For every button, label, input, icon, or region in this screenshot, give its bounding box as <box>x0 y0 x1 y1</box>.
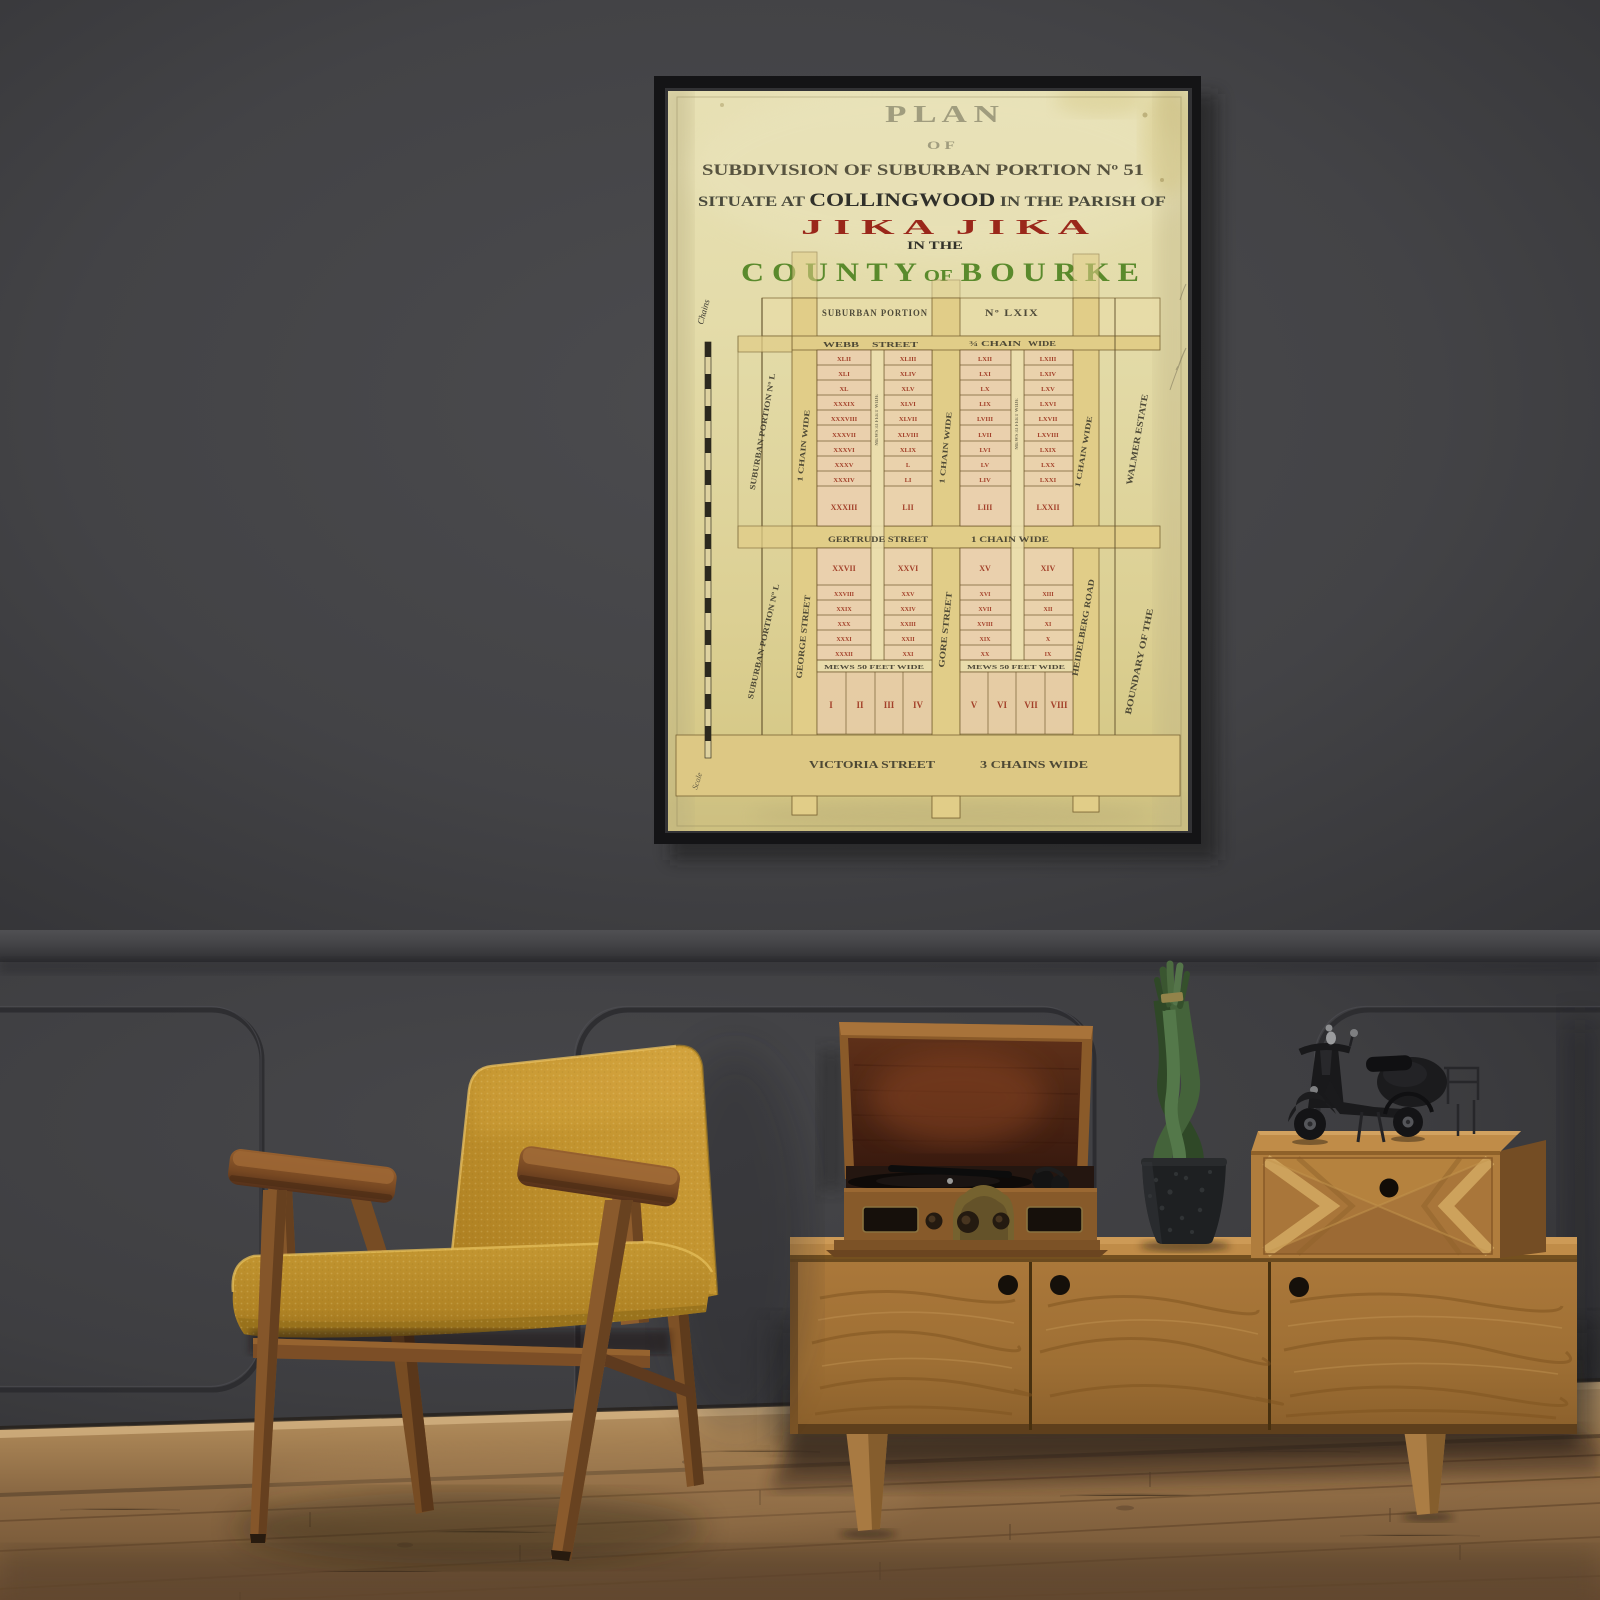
svg-text:XXXI: XXXI <box>836 637 852 643</box>
svg-text:XXXII: XXXII <box>835 652 853 658</box>
svg-text:VII: VII <box>1024 700 1038 710</box>
svg-text:XXVII: XXVII <box>832 564 856 573</box>
svg-text:XVII: XVII <box>978 607 992 613</box>
svg-text:XL: XL <box>839 386 849 393</box>
svg-text:LXV: LXV <box>1041 386 1055 393</box>
svg-text:XLVII: XLVII <box>899 416 918 423</box>
svg-text:LI: LI <box>905 477 912 484</box>
svg-text:XVI: XVI <box>979 592 991 598</box>
svg-text:LXXI: LXXI <box>1040 477 1057 484</box>
svg-text:WIDE: WIDE <box>1028 340 1056 348</box>
svg-text:LXX: LXX <box>1041 462 1055 469</box>
svg-text:XII: XII <box>1043 607 1053 613</box>
svg-text:J I K A J I K A: J I K A J I K A <box>801 215 1091 239</box>
svg-text:LIX: LIX <box>979 401 991 408</box>
svg-text:II: II <box>856 700 864 710</box>
svg-text:IV: IV <box>913 700 924 710</box>
svg-text:XVIII: XVIII <box>977 622 993 628</box>
svg-text:SITUATE AT COLLINGWOOD IN THE: SITUATE AT COLLINGWOOD IN THE PARISH OF <box>698 190 1166 211</box>
svg-text:IN THE: IN THE <box>907 238 963 252</box>
svg-text:LXVIII: LXVIII <box>1037 432 1059 439</box>
svg-text:XXIV: XXIV <box>900 607 916 613</box>
svg-text:O F: O F <box>927 138 955 152</box>
svg-text:XLV: XLV <box>901 386 914 393</box>
svg-text:I: I <box>829 700 833 710</box>
svg-text:GERTRUDE STREET: GERTRUDE STREET <box>828 534 928 544</box>
svg-text:LIII: LIII <box>978 503 993 512</box>
svg-text:MEWS 50 FEET WIDE: MEWS 50 FEET WIDE <box>967 665 1065 671</box>
svg-text:IX: IX <box>1045 652 1052 658</box>
svg-text:LVII: LVII <box>978 432 992 439</box>
svg-text:XXV: XXV <box>902 592 916 598</box>
svg-text:XXIX: XXIX <box>836 607 852 613</box>
svg-text:LXIII: LXIII <box>1040 356 1057 363</box>
svg-text:LXXII: LXXII <box>1036 503 1059 512</box>
svg-text:III: III <box>884 700 895 710</box>
svg-text:XXXIII: XXXIII <box>831 503 858 512</box>
svg-text:Nº LXIX: Nº LXIX <box>985 308 1039 318</box>
svg-text:LII: LII <box>902 503 914 512</box>
svg-text:LV: LV <box>981 462 990 469</box>
svg-text:XXXVII: XXXVII <box>832 432 856 439</box>
svg-text:¾ CHAIN: ¾ CHAIN <box>969 340 1021 348</box>
svg-text:XIII: XIII <box>1042 592 1054 598</box>
svg-text:STREET: STREET <box>872 340 918 349</box>
svg-text:XX: XX <box>981 652 990 658</box>
svg-text:LXI: LXI <box>979 371 991 378</box>
svg-text:XXXIX: XXXIX <box>833 401 855 408</box>
svg-text:SUBDIVISION OF SUBURBAN PORTIO: SUBDIVISION OF SUBURBAN PORTION Nº 51 <box>702 162 1144 179</box>
svg-text:X: X <box>1046 637 1051 643</box>
svg-text:LX: LX <box>980 386 989 393</box>
svg-text:XLIX: XLIX <box>900 447 917 454</box>
svg-text:LVIII: LVIII <box>977 416 993 423</box>
svg-text:XXXVI: XXXVI <box>833 447 855 454</box>
svg-text:XXXV: XXXV <box>835 462 854 469</box>
svg-text:XLVIII: XLVIII <box>898 432 919 439</box>
svg-text:MEWS 50 FEET WIDE: MEWS 50 FEET WIDE <box>824 665 924 671</box>
svg-text:XXII: XXII <box>901 637 915 643</box>
svg-text:LXVI: LXVI <box>1040 401 1057 408</box>
svg-text:VICTORIA STREET: VICTORIA STREET <box>809 760 935 771</box>
svg-text:LXVII: LXVII <box>1039 416 1058 423</box>
svg-text:1 CHAIN WIDE: 1 CHAIN WIDE <box>971 535 1049 544</box>
svg-text:XXI: XXI <box>902 652 914 658</box>
svg-text:XLVI: XLVI <box>900 401 916 408</box>
svg-text:XIX: XIX <box>979 637 991 643</box>
svg-text:XIV: XIV <box>1041 564 1056 573</box>
svg-text:XXXVIII: XXXVIII <box>831 416 858 423</box>
svg-text:LIV: LIV <box>979 477 991 484</box>
svg-text:XLI: XLI <box>838 371 850 378</box>
svg-text:VI: VI <box>997 700 1007 710</box>
svg-text:XXIII: XXIII <box>900 622 916 628</box>
svg-text:LXII: LXII <box>978 356 993 363</box>
svg-text:LXIV: LXIV <box>1040 371 1057 378</box>
svg-text:XLIII: XLIII <box>900 356 917 363</box>
svg-text:XXVIII: XXVIII <box>834 592 855 598</box>
svg-text:XXVI: XXVI <box>898 564 918 573</box>
svg-text:XXXIV: XXXIV <box>833 477 855 484</box>
svg-text:WEBB: WEBB <box>823 340 859 349</box>
svg-text:MEWS 33 FEET WIDE: MEWS 33 FEET WIDE <box>875 394 880 446</box>
svg-text:L: L <box>906 462 911 469</box>
svg-text:LVI: LVI <box>980 447 991 454</box>
svg-text:MEWS 33 FEET WIDE: MEWS 33 FEET WIDE <box>1015 398 1020 450</box>
svg-text:LXIX: LXIX <box>1040 447 1057 454</box>
svg-text:XXX: XXX <box>838 622 852 628</box>
svg-text:P L A N: P L A N <box>885 102 1000 128</box>
svg-text:VIII: VIII <box>1050 700 1068 710</box>
svg-text:3 CHAINS WIDE: 3 CHAINS WIDE <box>980 760 1088 771</box>
svg-text:XV: XV <box>979 564 991 573</box>
svg-text:SUBURBAN PORTION: SUBURBAN PORTION <box>822 308 928 318</box>
svg-text:XLIV: XLIV <box>900 371 917 378</box>
svg-text:XI: XI <box>1045 622 1052 628</box>
svg-text:V: V <box>971 700 978 710</box>
svg-text:XLII: XLII <box>837 356 852 363</box>
